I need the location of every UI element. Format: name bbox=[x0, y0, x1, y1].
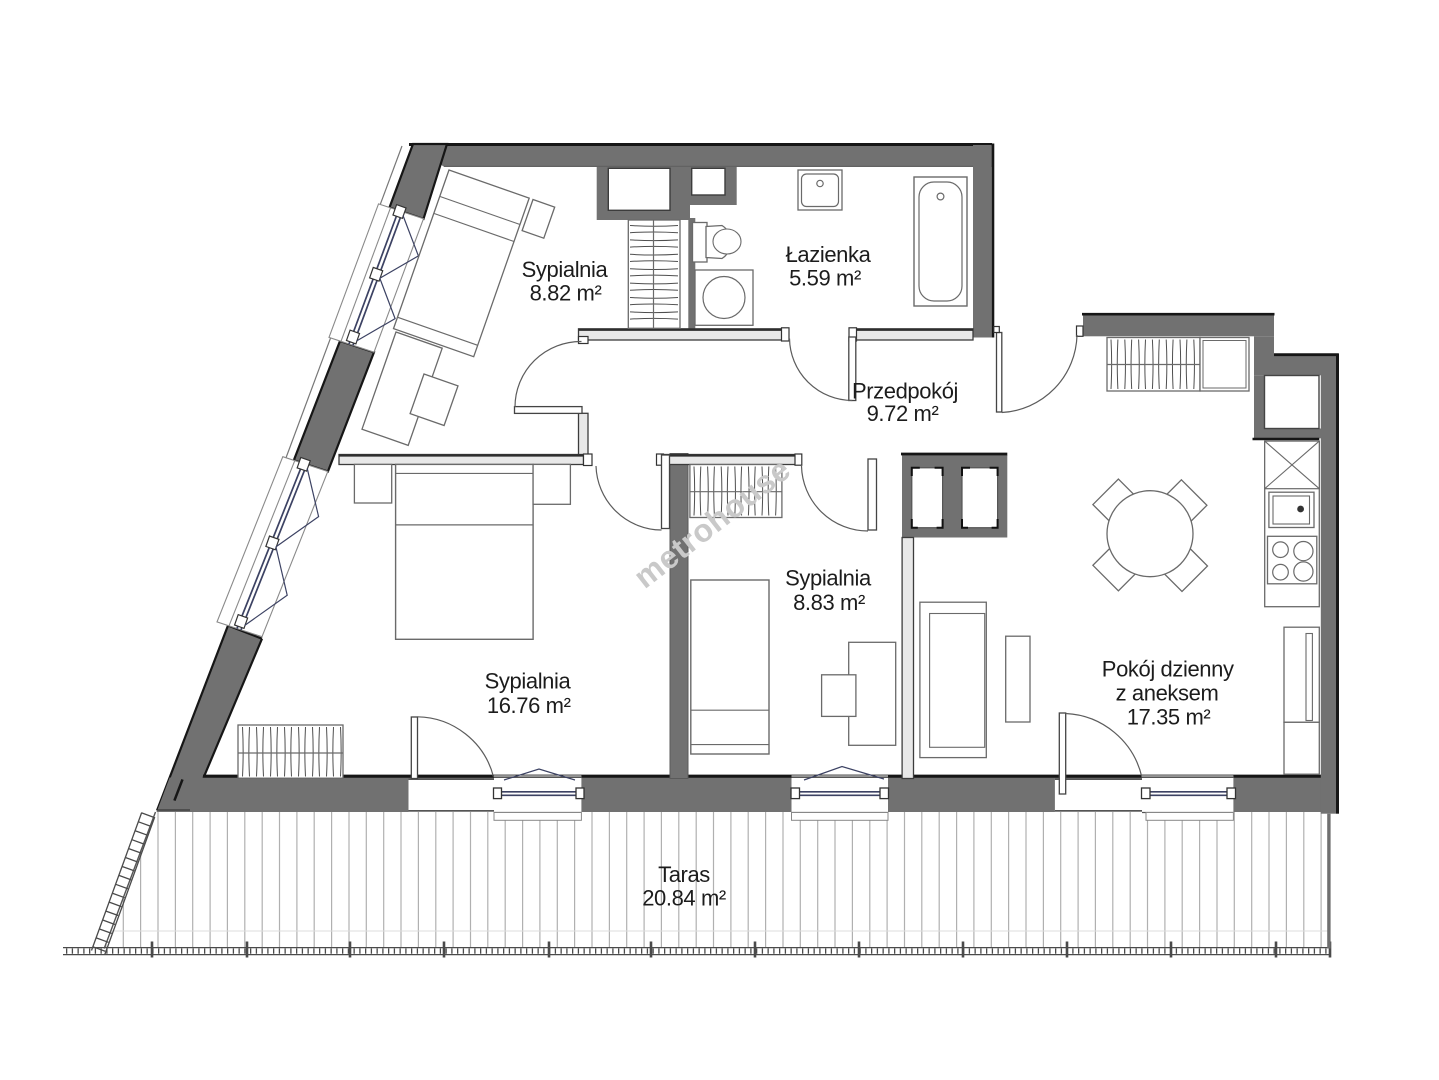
svg-text:Sypialnia8.83 m²: Sypialnia8.83 m² bbox=[785, 566, 872, 615]
svg-text:Łazienka5.59 m²: Łazienka5.59 m² bbox=[786, 242, 872, 290]
svg-text:Sypialnia8.82 m²: Sypialnia8.82 m² bbox=[522, 257, 609, 305]
svg-text:Sypialnia16.76 m²: Sypialnia16.76 m² bbox=[485, 668, 572, 718]
